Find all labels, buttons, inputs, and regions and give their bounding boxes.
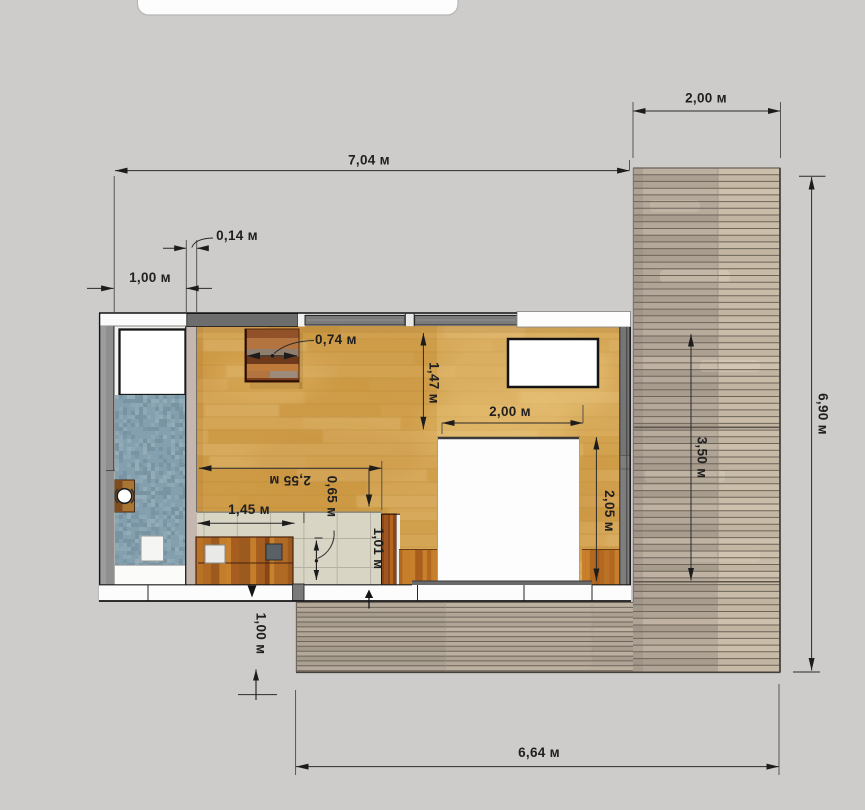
svg-text:6,64 м: 6,64 м (518, 745, 560, 760)
svg-text:1,45 м: 1,45 м (228, 502, 270, 517)
svg-text:1,00 м: 1,00 м (129, 270, 171, 285)
svg-text:2,00 м: 2,00 м (489, 404, 531, 419)
svg-text:3,50 м: 3,50 м (695, 437, 710, 479)
svg-text:1,00 м: 1,00 м (254, 613, 269, 655)
svg-text:2,55 м: 2,55 м (269, 473, 311, 488)
svg-text:0,74 м: 0,74 м (315, 332, 357, 347)
svg-text:0,14 м: 0,14 м (216, 228, 258, 243)
svg-text:0,65 м: 0,65 м (325, 476, 340, 518)
svg-text:7,04 м: 7,04 м (348, 153, 390, 168)
svg-text:2,05 м: 2,05 м (602, 490, 617, 532)
svg-text:1,01 м: 1,01 м (371, 528, 386, 570)
svg-text:6,90 м: 6,90 м (816, 393, 831, 435)
svg-text:1,47 м: 1,47 м (427, 362, 442, 404)
svg-text:2,00 м: 2,00 м (685, 91, 727, 106)
